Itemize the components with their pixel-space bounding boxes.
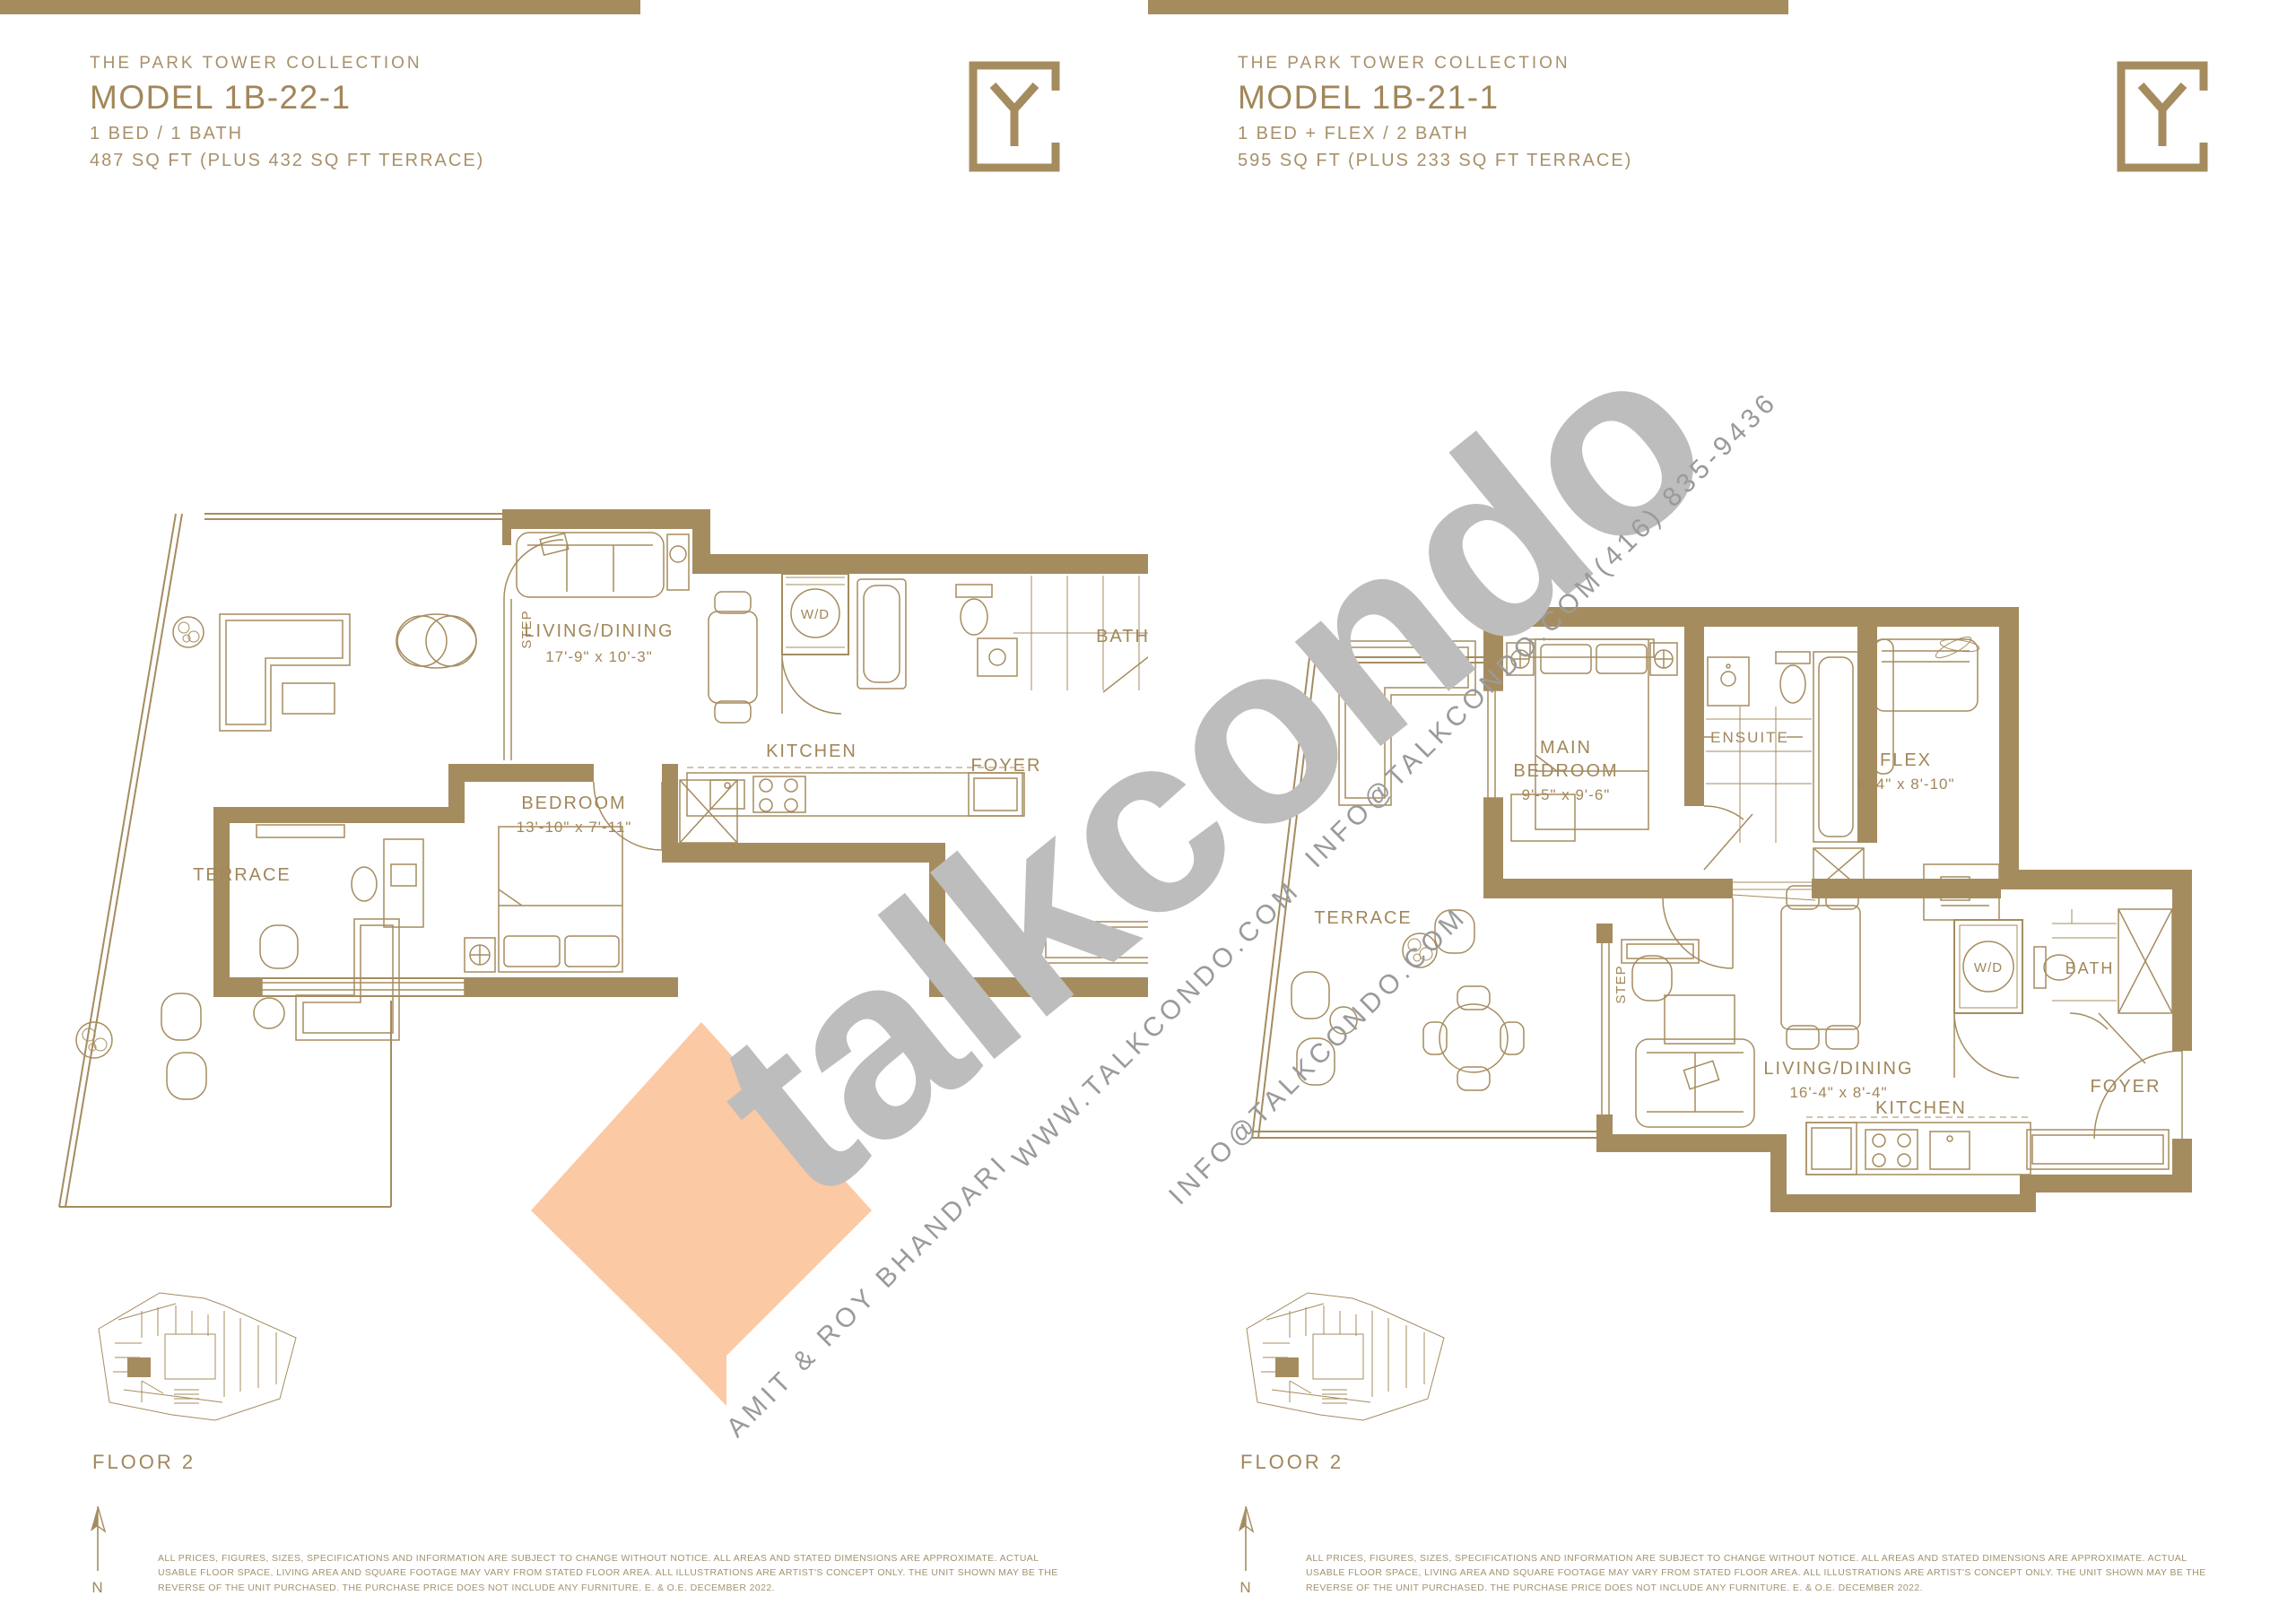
ensuite-fixtures	[1697, 652, 1858, 843]
bath-label: BATH	[2066, 959, 2115, 977]
disclaimer-text: ALL PRICES, FIGURES, SIZES, SPECIFICATIO…	[158, 1551, 1073, 1595]
bedroom-dim: 13'-10" x 7'-11"	[517, 819, 632, 836]
main-bedroom-label-2: BEDROOM	[1513, 761, 1618, 781]
living-label: LIVING/DINING	[524, 621, 674, 641]
panel-model-1b-22-1: THE PARK TOWER COLLECTION MODEL 1B-22-1 …	[0, 0, 1148, 1613]
floor-label: FLOOR 2	[1240, 1451, 1344, 1474]
bed-bath-config: 1 BED + FLEX / 2 BATH	[1238, 124, 1632, 144]
north-label: N	[1231, 1579, 1261, 1597]
bedroom-closet	[680, 780, 737, 843]
model-title: MODEL 1B-21-1	[1238, 79, 1632, 117]
north-arrow-icon	[87, 1506, 109, 1573]
plan-header: THE PARK TOWER COLLECTION MODEL 1B-22-1 …	[90, 54, 484, 171]
kitchen-counters	[1806, 1117, 2031, 1175]
floorplan-1b-21-1: TERRACE MAIN BEDROOM 9'-5" x 9'-6" ENSUI…	[1148, 421, 2296, 1228]
living-sofa	[517, 533, 664, 597]
collection-title: THE PARK TOWER COLLECTION	[90, 54, 484, 74]
y-tower-logo-icon	[2117, 61, 2208, 172]
floorplan-sheet: { "document": { "brand_watermark": "talk…	[0, 0, 2296, 1613]
bath-label: BATH	[1096, 627, 1148, 646]
flex-dim: 6'-4" x 8'-10"	[1857, 776, 1954, 793]
bed-bath-config: 1 BED / 1 BATH	[90, 124, 484, 144]
keyplate-floor2	[88, 1284, 303, 1436]
flex-label: FLEX	[1880, 750, 1932, 770]
laundry-closet	[782, 574, 848, 714]
keyplate-floor2	[1236, 1284, 1451, 1436]
floor-label: FLOOR 2	[92, 1451, 196, 1474]
dining-table	[709, 592, 757, 723]
north-arrow: N	[83, 1506, 113, 1597]
highlighted-unit	[127, 1357, 151, 1377]
kitchen-label: KITCHEN	[1875, 1098, 1967, 1118]
living-label: LIVING/DINING	[1763, 1059, 1913, 1079]
plan-header: THE PARK TOWER COLLECTION MODEL 1B-21-1 …	[1238, 54, 1632, 171]
tv-unit	[667, 534, 689, 590]
door-swings	[504, 540, 1148, 929]
terrace-furniture	[1291, 641, 1672, 1090]
bedroom-label: BEDROOM	[521, 793, 626, 813]
north-label: N	[83, 1579, 113, 1597]
model-title: MODEL 1B-22-1	[90, 79, 484, 117]
bedroom-furniture	[257, 825, 622, 972]
floorplan-1b-22-1: TERRACE STEP LIVING/DINING 17'-9" x 10'-…	[0, 421, 1148, 1228]
y-tower-logo-icon	[969, 61, 1060, 172]
foyer-closet	[1040, 922, 1148, 963]
panel-model-1b-21-1: THE PARK TOWER COLLECTION MODEL 1B-21-1 …	[1148, 0, 2296, 1613]
north-arrow: N	[1231, 1506, 1261, 1597]
area-label: 487 SQ FT (PLUS 432 SQ FT TERRACE)	[90, 151, 484, 171]
highlighted-unit	[1275, 1357, 1299, 1377]
living-dim: 16'-4" x 8'-4"	[1789, 1084, 1887, 1101]
main-bedroom-label-1: MAIN	[1540, 738, 1592, 758]
wd-label: W/D	[1974, 960, 2003, 976]
foyer-label: FOYER	[2091, 1077, 2161, 1097]
foyer-closet	[2027, 1130, 2169, 1169]
terrace-boundary	[59, 514, 502, 1207]
terrace-label: TERRACE	[1314, 908, 1413, 928]
top-accent-bar	[1148, 0, 1788, 14]
kitchen-label: KITCHEN	[766, 741, 857, 761]
terrace-label: TERRACE	[193, 865, 291, 885]
area-label: 595 SQ FT (PLUS 233 SQ FT TERRACE)	[1238, 151, 1632, 171]
ensuite-label: ENSUITE	[1710, 729, 1789, 746]
top-accent-bar	[0, 0, 640, 14]
living-dim: 17'-9" x 10'-3"	[545, 648, 653, 665]
collection-title: THE PARK TOWER COLLECTION	[1238, 54, 1632, 74]
north-arrow-icon	[1235, 1506, 1257, 1573]
foyer-label: FOYER	[971, 756, 1042, 776]
wd-label: W/D	[801, 607, 830, 622]
terrace-furniture	[76, 614, 476, 1099]
disclaimer-text: ALL PRICES, FIGURES, SIZES, SPECIFICATIO…	[1306, 1551, 2221, 1595]
main-bedroom-dim: 9'-5" x 9'-6"	[1522, 786, 1611, 803]
step-label: STEP	[1613, 965, 1629, 1003]
